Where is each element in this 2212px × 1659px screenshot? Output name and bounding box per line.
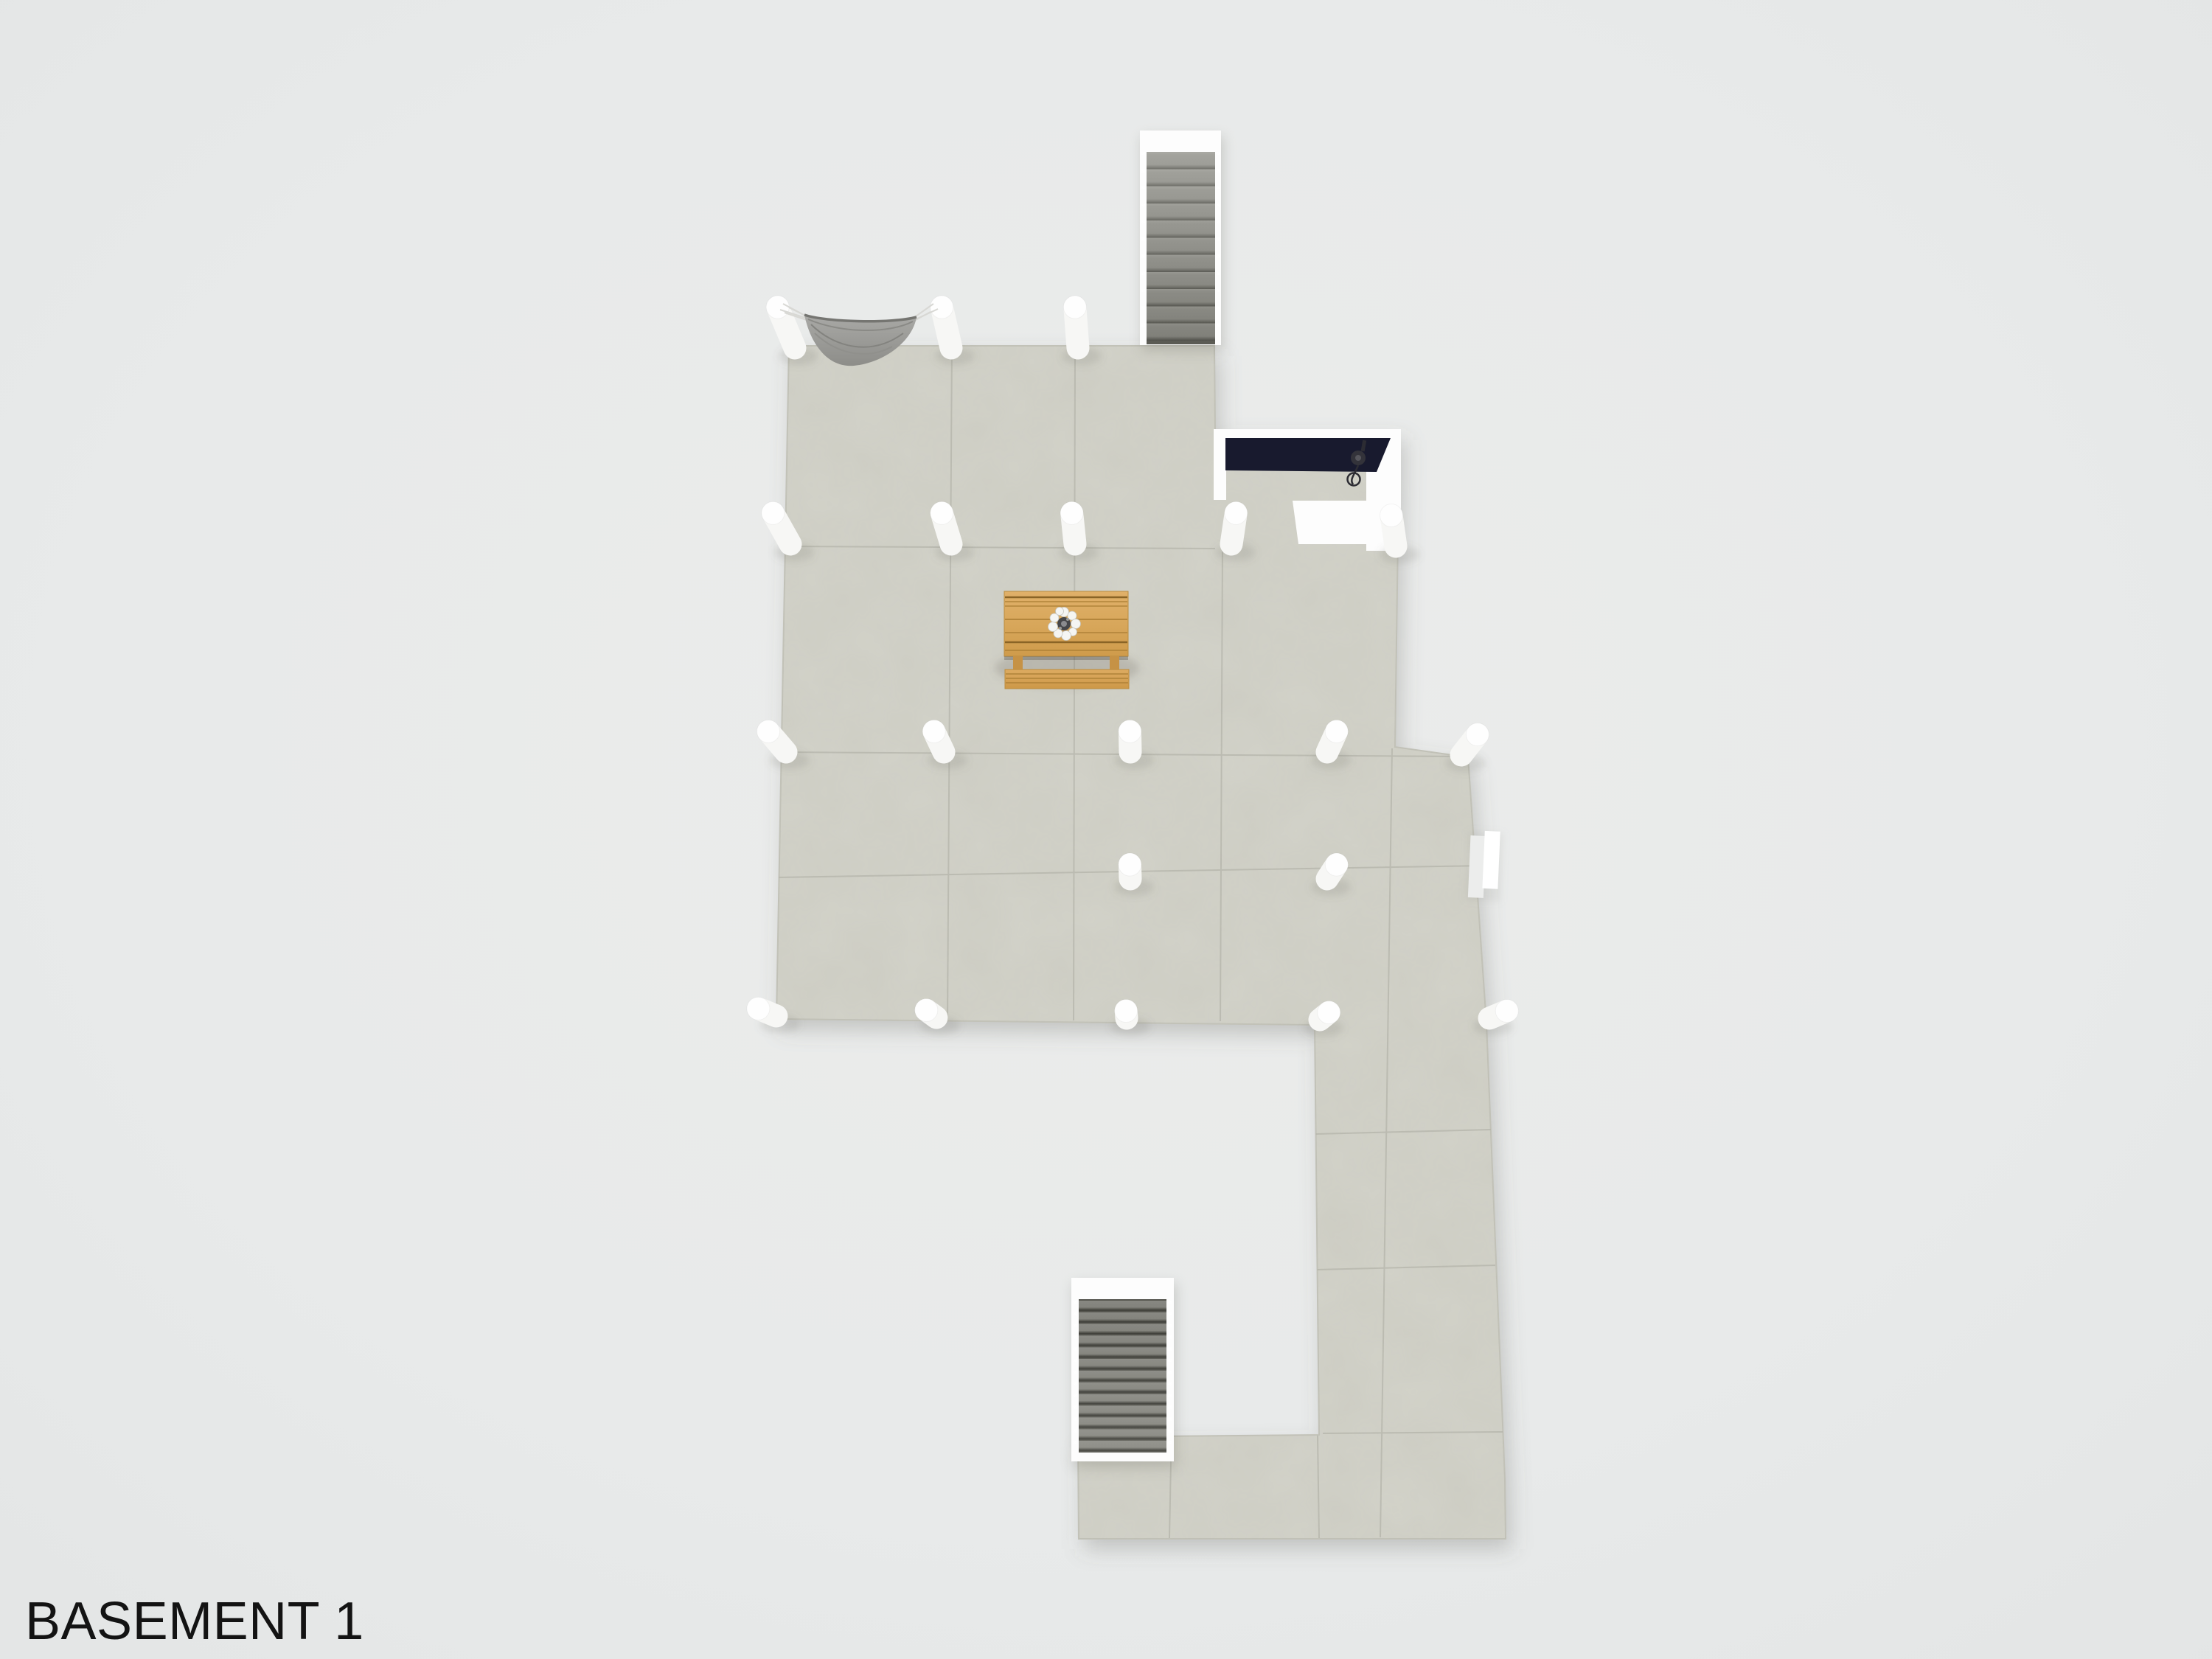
column [931, 296, 975, 365]
baluster-strip [1074, 1301, 1077, 1453]
baluster-strip [1141, 152, 1145, 341]
baluster-strip [1217, 152, 1220, 341]
table-leg-left [1013, 656, 1023, 669]
table-leg-right [1110, 656, 1119, 669]
floor-label: BASEMENT 1 [25, 1595, 364, 1648]
bathroom-wall-left [1214, 429, 1226, 500]
table-underside-shadow [1004, 656, 1128, 660]
door-leaf [1482, 831, 1500, 889]
column [1062, 296, 1102, 365]
column [1380, 504, 1419, 564]
bench [1005, 669, 1129, 689]
baluster-strip [1168, 1301, 1172, 1453]
staircase-lower-steps [1079, 1299, 1166, 1453]
staircase-upper-steps [1147, 152, 1215, 344]
staircase-lower [1071, 1278, 1174, 1461]
column [1445, 723, 1489, 772]
side-door [1466, 830, 1503, 902]
picnic-table [995, 591, 1139, 689]
bathroom-wall-lower [1293, 501, 1377, 544]
staircase-upper [1140, 131, 1221, 345]
basement-floorplan-scene: BASEMENT 1 [0, 0, 2212, 1659]
